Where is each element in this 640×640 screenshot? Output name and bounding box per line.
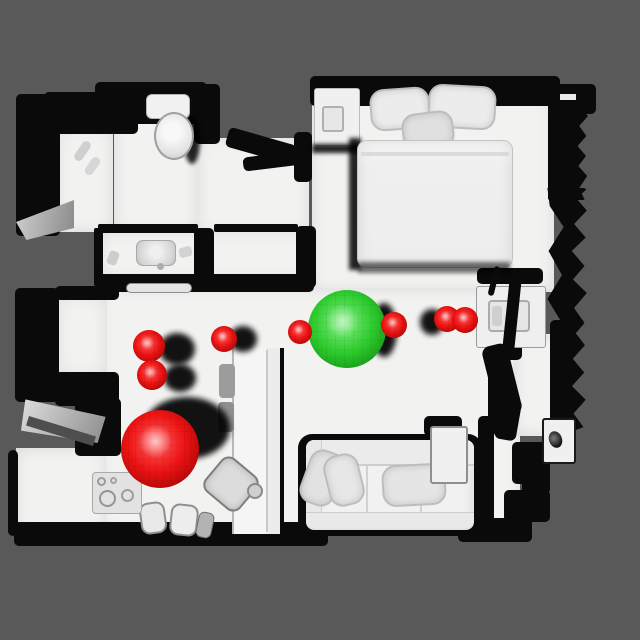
waypoint-red-7[interactable] [452, 307, 478, 333]
waypoint-red-1[interactable] [133, 330, 165, 362]
waypoint-red-5[interactable] [381, 312, 407, 338]
waypoint-red-2-shadow [164, 364, 196, 392]
waypoint-red-2[interactable] [137, 360, 167, 390]
waypoint-red-4[interactable] [288, 320, 312, 344]
waypoint-red-3[interactable] [211, 326, 237, 352]
target-marker-green[interactable] [308, 290, 386, 368]
3d-viewport[interactable] [0, 0, 640, 640]
marker-layer [0, 0, 640, 640]
waypoint-red-large[interactable] [121, 410, 199, 488]
